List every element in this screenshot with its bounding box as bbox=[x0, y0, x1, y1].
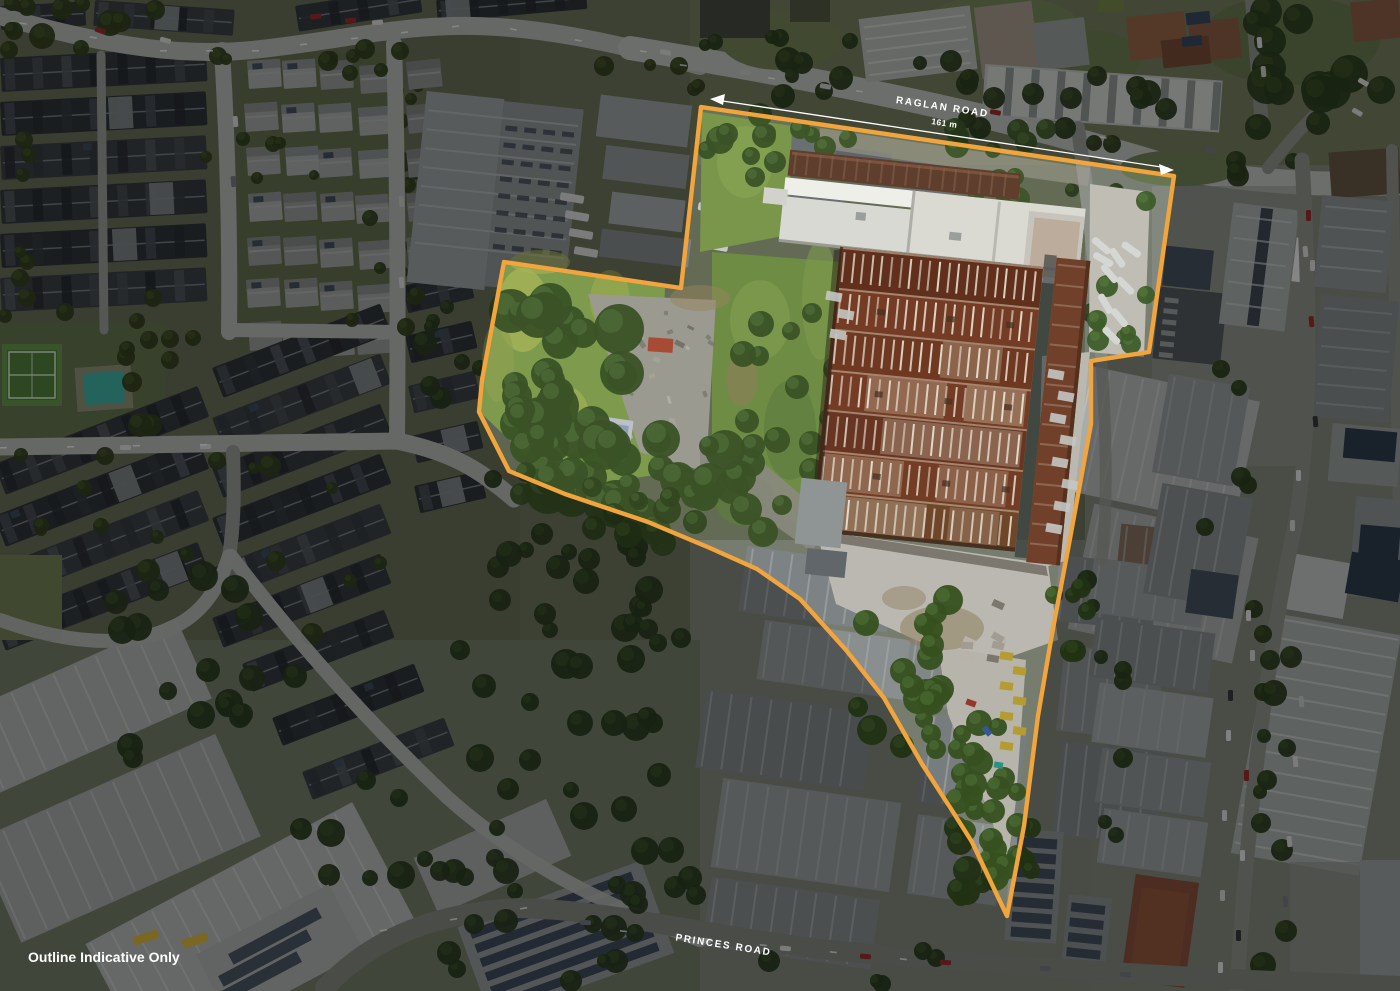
svg-text:Outline Indicative Only: Outline Indicative Only bbox=[28, 949, 180, 965]
